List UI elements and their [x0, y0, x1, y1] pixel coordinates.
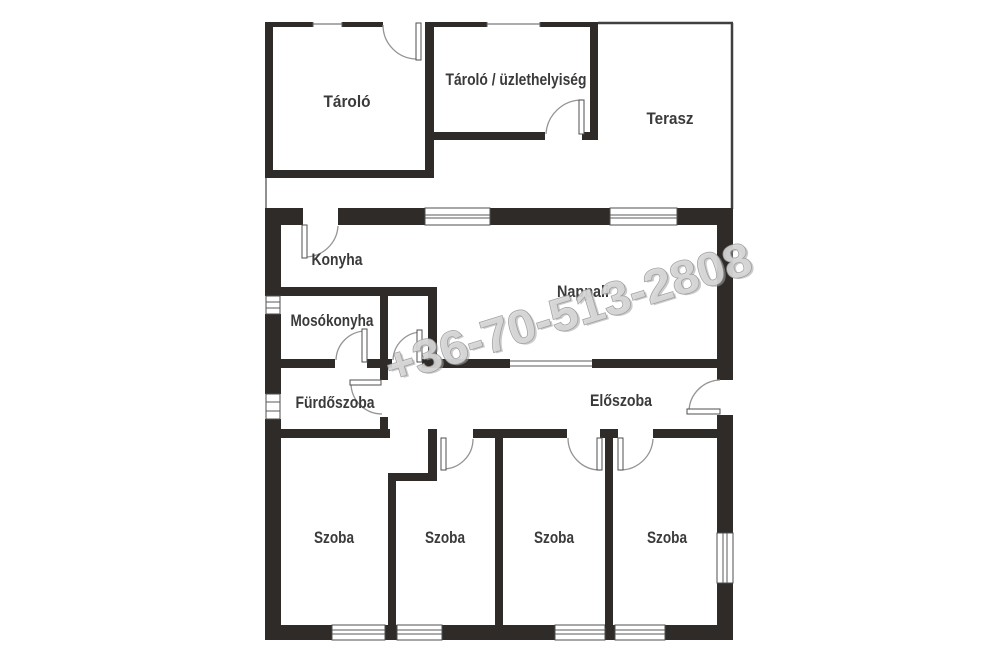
floor-plan-canvas: Tároló Tároló / üzlethelyiség Terasz Kon…	[0, 0, 1000, 666]
wall-segment	[495, 438, 503, 628]
room-label-konyha: Konyha	[312, 251, 364, 269]
door-arc	[620, 439, 653, 470]
wall-segment	[265, 314, 281, 394]
room-label-szoba-1: Szoba	[314, 529, 355, 547]
room-label-terasz: Terasz	[647, 110, 694, 128]
wall-segment	[717, 415, 733, 533]
door-arc	[383, 25, 417, 59]
room-label-tarolo-uzlethelyiseg: Tároló / üzlethelyiség	[446, 71, 587, 89]
window	[555, 625, 605, 640]
door-leaf	[597, 438, 602, 470]
wall-segment	[265, 419, 281, 640]
wall-segment	[665, 625, 733, 640]
wall-segment	[473, 429, 567, 438]
wall-segment	[434, 132, 545, 140]
wall-segment	[265, 429, 390, 438]
wall-segment	[592, 359, 717, 368]
room-label-eloszoba: Előszoba	[590, 392, 653, 410]
tarolo-top-window	[313, 22, 342, 27]
wall-segment	[265, 625, 332, 640]
door-arc	[336, 331, 365, 360]
wall-segment	[434, 22, 487, 27]
window	[332, 625, 385, 640]
window	[717, 533, 733, 583]
door-arc	[689, 380, 720, 411]
door-leaf	[350, 380, 381, 385]
wall-segment	[342, 22, 383, 27]
room-label-tarolo: Tároló	[324, 93, 371, 111]
door-leaf	[416, 23, 421, 60]
wall-segment	[265, 359, 335, 368]
door-arc	[546, 100, 582, 134]
wall-segment	[265, 22, 273, 178]
window	[397, 625, 442, 640]
door-leaf	[362, 329, 367, 362]
wall-segment	[653, 429, 717, 438]
window	[425, 208, 490, 225]
room-label-furdoszoba: Fürdőszoba	[296, 394, 376, 412]
wall-segment	[425, 22, 434, 178]
door-arc	[443, 439, 473, 469]
uzlethelyiseg-door	[546, 100, 584, 134]
window	[610, 208, 677, 225]
uzlethelyiseg-top-window	[487, 22, 540, 27]
door-leaf	[687, 409, 720, 414]
door-leaf	[441, 438, 446, 470]
wall-segment	[281, 287, 437, 296]
door-leaf	[579, 100, 584, 134]
wall-segment	[540, 22, 598, 27]
floor-plan-drawing: Tároló Tároló / üzlethelyiség Terasz Kon…	[0, 0, 1000, 666]
wall-segment	[265, 170, 434, 178]
tarolo-door	[383, 23, 421, 60]
door-leaf	[618, 438, 623, 470]
room-label-mosokonyha: Mosókonyha	[291, 312, 375, 330]
wall-segment	[265, 208, 281, 296]
window	[266, 296, 280, 314]
wall-segment	[338, 208, 425, 225]
wall-segment	[590, 22, 598, 140]
room-label-szoba-3: Szoba	[534, 529, 575, 547]
door-arc	[568, 438, 600, 470]
room-label-szoba-4: Szoba	[647, 529, 688, 547]
wall-segment	[605, 438, 613, 628]
wall-segment	[388, 479, 396, 628]
window	[266, 394, 280, 419]
door-leaf	[302, 225, 307, 258]
wall-segment	[490, 208, 610, 225]
room-label-szoba-2: Szoba	[425, 529, 466, 547]
wall-segment	[600, 429, 618, 438]
window	[615, 625, 665, 640]
